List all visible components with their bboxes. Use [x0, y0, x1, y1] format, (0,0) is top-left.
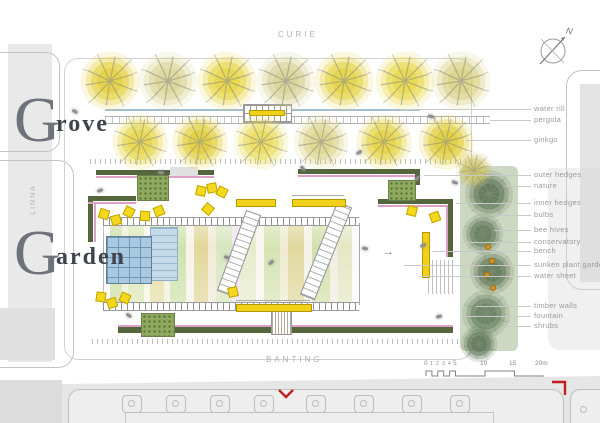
legend-label-timber-walls: timber walls [534, 302, 577, 310]
chair [95, 291, 106, 302]
bench [236, 199, 276, 207]
ginkgo-tree [291, 112, 351, 172]
legend-label-outer-hedges: outer hedges [534, 171, 581, 179]
lower-fence-ticks [92, 339, 462, 344]
bottom-left-block [0, 380, 62, 423]
north-label: N [565, 25, 573, 36]
leader-line [460, 242, 531, 243]
ginkgo-tree [170, 112, 230, 172]
chair [227, 286, 239, 298]
hedge-accent [446, 205, 448, 257]
legend-label-bench: bench [534, 247, 556, 255]
bench [236, 304, 312, 312]
ginkgo-tree [373, 49, 437, 113]
leader-line [466, 140, 531, 141]
title-garden-rest: arden [56, 244, 126, 271]
outer-hedge-bottom-right [290, 327, 453, 333]
hedge-accent [290, 325, 453, 327]
red-chevron-marker [278, 389, 294, 399]
column-cap [580, 406, 587, 413]
ginkgo-tree [195, 49, 259, 113]
path-arrow: → [383, 246, 394, 258]
column-cap [408, 400, 415, 407]
legend-label-water-sheet: water sheet [534, 272, 576, 280]
scale-1: 1 [430, 361, 433, 367]
bottom-building-inner-wall [125, 412, 494, 423]
leader-line [432, 251, 531, 252]
red-corner-marker [550, 379, 568, 397]
column-cap [216, 400, 223, 407]
bee-hive [484, 272, 490, 278]
legend-label-nature: nature [534, 182, 557, 190]
leader-line [400, 109, 531, 110]
hedge-accent [94, 202, 96, 242]
street-label-banting: BANTING [266, 355, 323, 364]
title-garden-initial: G [14, 223, 60, 283]
shrub-patch [141, 313, 175, 337]
timber-wall-block [271, 309, 292, 335]
chair [140, 211, 151, 222]
column-cap [312, 400, 319, 407]
leader-line [460, 316, 531, 317]
scale-5: 5 [453, 360, 457, 367]
bee-hive [490, 285, 496, 291]
bench-vertical [422, 232, 430, 278]
bench [292, 199, 346, 207]
scale-15: 15 [509, 360, 516, 367]
column-cap [456, 400, 463, 407]
inner-hedge-left-h [88, 196, 136, 201]
street-label-linna: LINNA [30, 184, 37, 215]
column-cap [260, 400, 267, 407]
legend-label-bee-hives: bee hives [534, 226, 569, 234]
ginkgo-tree [416, 112, 476, 172]
scale-bar: 0 1 2 3 4 5 10 15 20m [425, 360, 555, 378]
ginkgo-tree [78, 49, 142, 113]
ginkgo-tree [254, 49, 318, 113]
leader-line [504, 326, 531, 327]
legend-label-pergola: pergola [534, 116, 561, 124]
legend-label-sunken-plant-garden: sunken plant garden [534, 261, 600, 269]
column-cap [128, 400, 135, 407]
scale-10: 10 [480, 360, 487, 367]
scale-bar-graphic [425, 369, 549, 377]
ginkgo-tree [136, 49, 200, 113]
leader-line [490, 120, 531, 121]
leader-line [494, 230, 531, 231]
legend-label-fountain: fountain [534, 312, 563, 320]
scale-3: 3 [442, 361, 445, 367]
title-grove-rest: rove [56, 111, 109, 138]
garden-plan-board: → [0, 18, 600, 423]
nature-tree [459, 324, 499, 364]
ginkgo-tree [429, 49, 493, 113]
bee-hive [489, 258, 495, 264]
column-cap [360, 400, 367, 407]
ginkgo-tree [231, 112, 291, 172]
legend-label-ginkgo: ginkgo [534, 136, 558, 144]
shrub-patch [388, 180, 416, 201]
title-grove-initial: G [14, 90, 60, 150]
timber-wall-bottom [103, 302, 359, 311]
bench-back [236, 300, 310, 301]
leader-line [498, 215, 531, 216]
ginkgo-tree [110, 112, 170, 172]
scale-2: 2 [436, 361, 439, 367]
inner-hedge-right-v [448, 199, 453, 257]
legend-label-bulbs: bulbs [534, 211, 553, 219]
scale-20m: 20m [535, 360, 548, 367]
leader-line [476, 306, 531, 307]
leader-line [456, 203, 531, 204]
leader-line [404, 265, 531, 266]
legend-label-shrubs: shrubs [534, 322, 558, 330]
street-label-curie: CURIE [278, 30, 318, 39]
shrub-patch [137, 175, 169, 201]
leader-line [420, 276, 531, 277]
legend-label-water-rill: water rill [534, 105, 565, 113]
hedge-accent [298, 175, 420, 177]
ginkgo-tree [354, 112, 414, 172]
bee-hive [485, 244, 491, 250]
ginkgo-tree [312, 49, 376, 113]
left-building-block [0, 308, 55, 360]
scale-0: 0 [424, 360, 428, 367]
column-cap [172, 400, 179, 407]
leader-line [424, 175, 531, 176]
scale-4: 4 [448, 361, 451, 367]
leader-line [506, 186, 531, 187]
bench-back [292, 195, 344, 196]
legend-label-conservatory: conservatory [534, 238, 581, 246]
water-sheet [150, 227, 178, 281]
chair [195, 185, 207, 197]
legend-label-inner-hedges: inner hedges [534, 199, 581, 207]
